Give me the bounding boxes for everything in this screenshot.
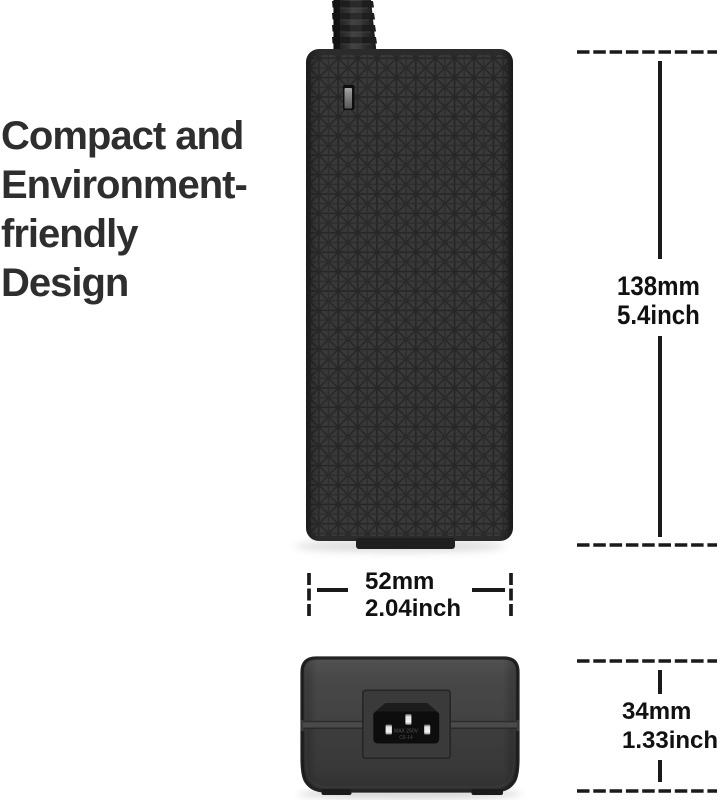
svg-text:C6-14: C6-14	[399, 735, 413, 741]
svg-text:MAX 250V: MAX 250V	[394, 729, 419, 735]
